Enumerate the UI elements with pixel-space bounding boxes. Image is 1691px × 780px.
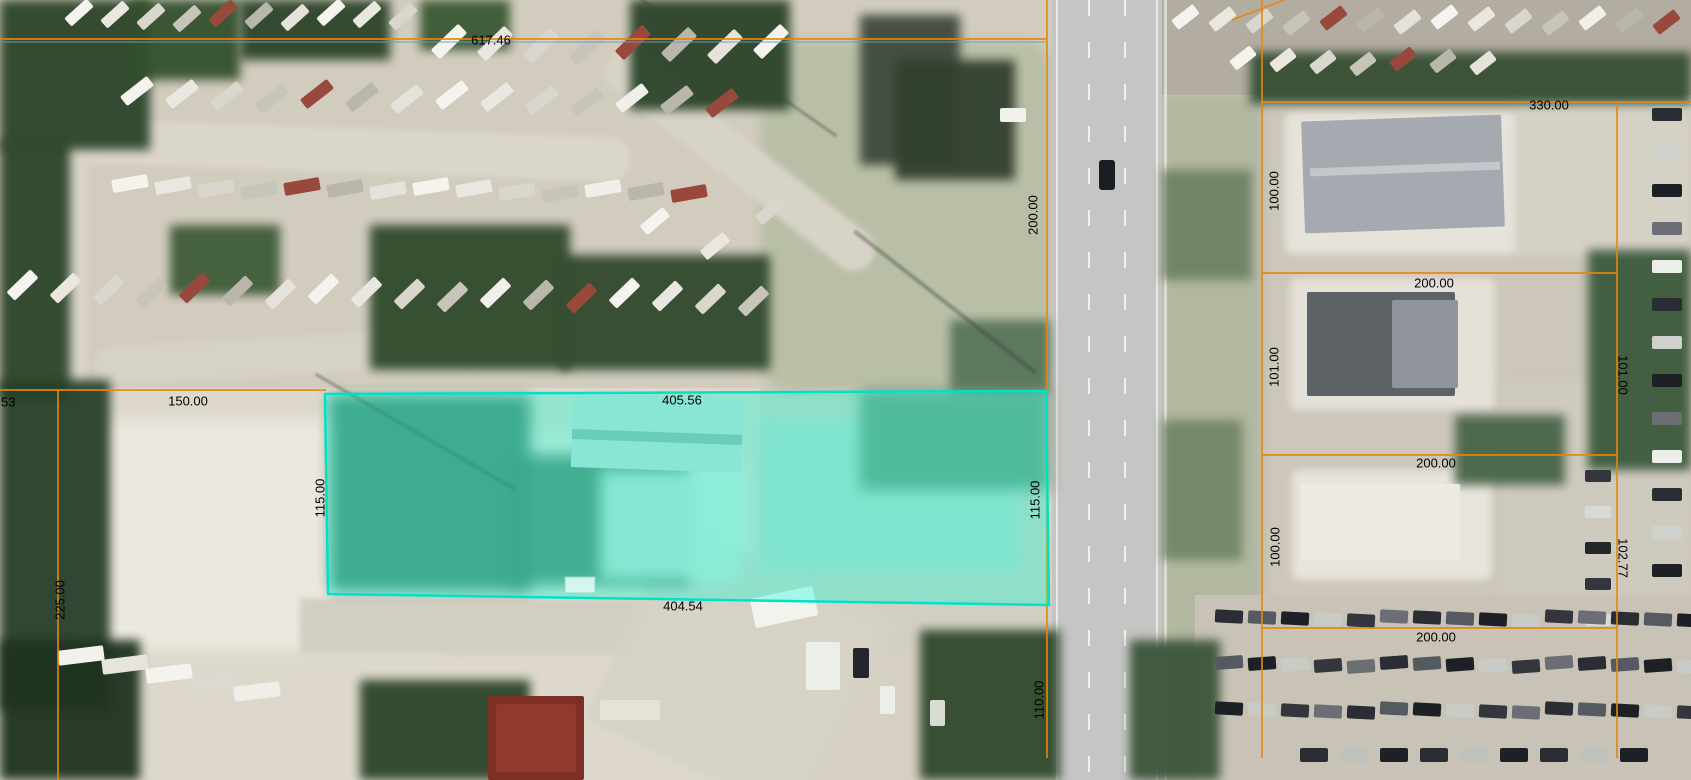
dimension-label: 115.00 (1029, 481, 1042, 520)
dimension-label: 405.56 (662, 394, 702, 407)
dimension-label: 225.00 (54, 580, 67, 620)
dimension-label: 200.00 (1416, 457, 1456, 470)
dimension-label: 115.00 (314, 479, 327, 518)
dimension-label: 200.00 (1027, 195, 1040, 235)
dimension-label: 100.00 (1268, 171, 1281, 211)
aerial-map-canvas: 617.4653150.00225.00200.00405.56115.0011… (0, 0, 1691, 780)
dimension-label: 110.00 (1033, 681, 1046, 720)
dimension-label: 617.46 (471, 34, 511, 47)
dimension-label: 330.00 (1529, 99, 1569, 112)
dimension-label: 101.00 (1617, 355, 1630, 395)
dimension-label: 404.54 (663, 600, 703, 613)
dimension-label: 150.00 (168, 395, 208, 408)
dimension-label: 200.00 (1414, 277, 1454, 290)
dimension-label: 101.00 (1268, 347, 1281, 387)
dimension-label: 100.00 (1269, 527, 1282, 567)
dimension-label: 200.00 (1416, 631, 1456, 644)
dimension-label-layer: 617.4653150.00225.00200.00405.56115.0011… (0, 0, 1691, 780)
dimension-label: 102.77 (1617, 538, 1630, 578)
dimension-label: 53 (1, 396, 15, 409)
